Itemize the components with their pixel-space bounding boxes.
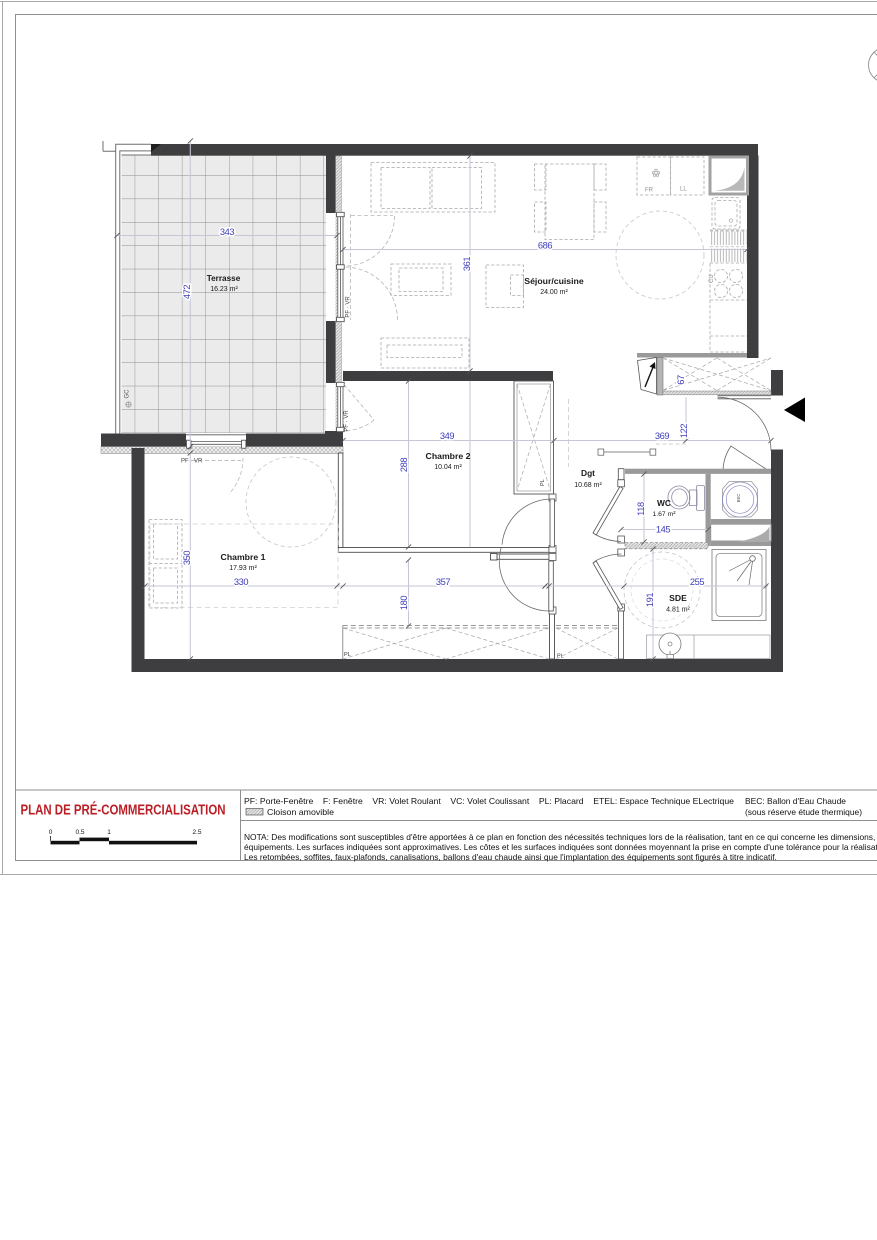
svg-text:CU: CU (709, 274, 715, 283)
svg-text:145: 145 (656, 525, 671, 535)
svg-text:Chambre 2: Chambre 2 (426, 451, 471, 461)
svg-text:Cloison amovible: Cloison amovible (267, 807, 334, 817)
svg-text:équipements. Les surfaces indi: équipements. Les surfaces indiquées sont… (244, 842, 877, 852)
svg-text:Séjour/cuisine: Séjour/cuisine (524, 276, 584, 286)
svg-text:PF: Porte-Fenêtre F: Fenêtr: PF: Porte-Fenêtre F: Fenêtre VR: Volet R… (244, 796, 734, 806)
svg-text:Dgt: Dgt (581, 468, 595, 478)
svg-text:180: 180 (399, 596, 409, 611)
svg-text:PF · VR: PF · VR (344, 410, 350, 432)
svg-text:BEC: Ballon d'Eau Chaude: BEC: Ballon d'Eau Chaude (745, 796, 846, 806)
svg-text:Chambre 1: Chambre 1 (221, 552, 266, 562)
svg-text:PL: PL (540, 479, 546, 486)
svg-text:PF · VR: PF · VR (181, 459, 203, 465)
svg-text:10.68 m²: 10.68 m² (574, 482, 602, 489)
svg-text:350: 350 (182, 551, 192, 566)
svg-text:PL: PL (557, 654, 564, 660)
svg-text:10.04 m²: 10.04 m² (434, 464, 462, 471)
svg-text:472: 472 (182, 285, 192, 300)
svg-text:0.5: 0.5 (75, 829, 84, 836)
svg-text:24.00 m²: 24.00 m² (540, 289, 568, 296)
svg-text:343: 343 (220, 227, 235, 237)
svg-text:BEC: BEC (736, 494, 741, 503)
svg-text:NOTA: Des modifications sont s: NOTA: Des modifications sont susceptible… (244, 832, 877, 842)
svg-text:686: 686 (538, 241, 553, 251)
svg-text:SDE: SDE (669, 593, 687, 603)
svg-text:2.5: 2.5 (192, 829, 201, 836)
svg-text:PLAN DE PRÉ-COMMERCIALISATION: PLAN DE PRÉ-COMMERCIALISATION (21, 802, 226, 819)
svg-text:361: 361 (462, 257, 472, 272)
svg-text:PL: PL (344, 652, 351, 658)
svg-text:349: 349 (440, 431, 455, 441)
svg-text:122: 122 (679, 424, 689, 439)
svg-text:0: 0 (49, 829, 53, 836)
svg-text:16.23 m²: 16.23 m² (210, 286, 238, 293)
svg-text:Les retombées, soffites, faux-: Les retombées, soffites, faux-plafonds, … (244, 852, 777, 862)
svg-text:Terrasse: Terrasse (207, 274, 241, 283)
svg-text:288: 288 (399, 458, 409, 473)
svg-text:330: 330 (234, 577, 249, 587)
svg-text:118: 118 (636, 502, 646, 516)
svg-text:FR: FR (645, 188, 654, 194)
svg-text:(sous réserve étude thermique): (sous réserve étude thermique) (745, 807, 862, 817)
svg-text:WC: WC (657, 498, 671, 508)
svg-text:357: 357 (436, 577, 451, 587)
svg-text:GC: GC (125, 389, 131, 399)
svg-text:1: 1 (107, 829, 111, 836)
svg-text:255: 255 (690, 577, 705, 587)
svg-text:191: 191 (645, 593, 655, 608)
svg-text:LL: LL (680, 187, 687, 193)
svg-text:1.67 m²: 1.67 m² (652, 511, 676, 518)
svg-text:369: 369 (655, 431, 670, 441)
svg-text:67: 67 (676, 375, 686, 385)
svg-text:4.81 m²: 4.81 m² (666, 607, 690, 614)
svg-text:PF · VR: PF · VR (346, 296, 352, 318)
svg-text:17.93 m²: 17.93 m² (229, 565, 257, 572)
